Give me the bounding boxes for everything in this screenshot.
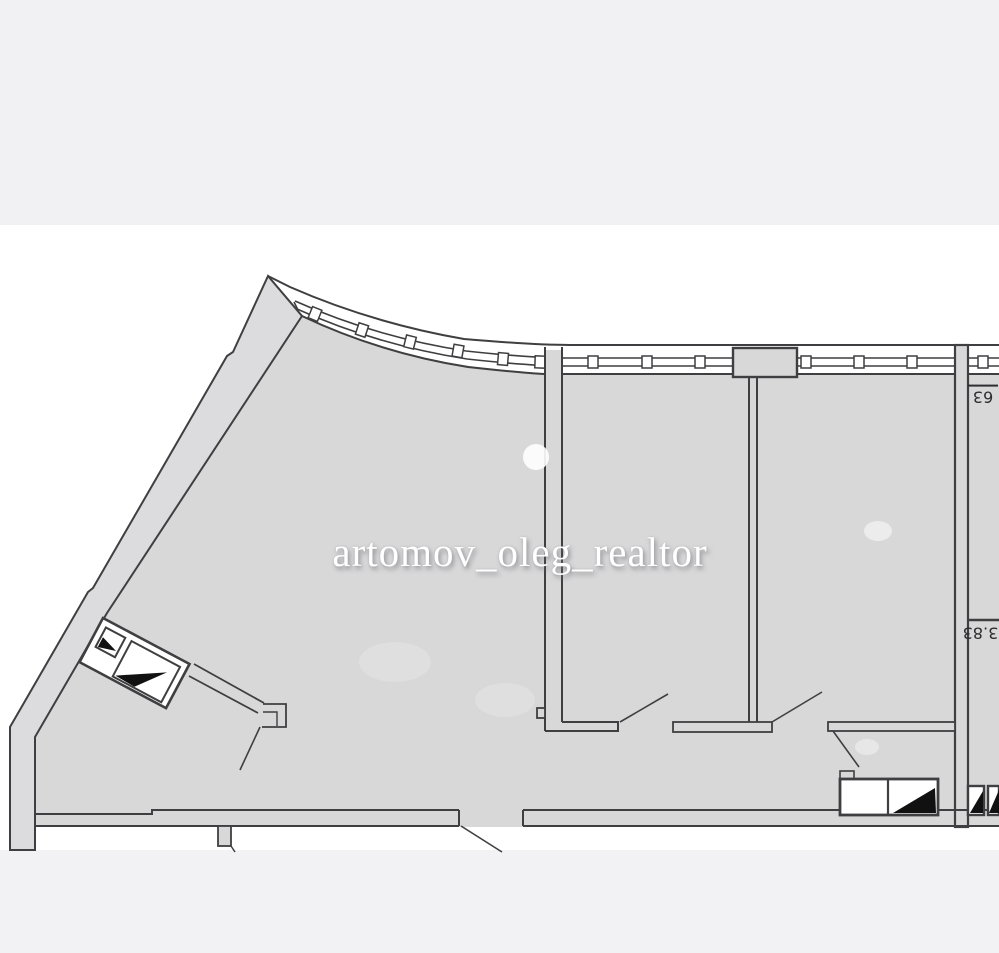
dimension-label-3-83: 3.83	[962, 624, 999, 642]
window-wall-pillar	[733, 348, 797, 377]
floor-plan-drawing	[0, 0, 999, 953]
dimension-label-63: 63	[968, 385, 998, 406]
partition-wall-3	[828, 722, 955, 731]
room-interior-fill	[10, 316, 999, 850]
screenshot-root: { "page": { "background_color": "#ffffff…	[0, 0, 999, 953]
window-wall-outer-line	[268, 276, 999, 345]
right-boundary-wall	[955, 345, 968, 827]
door-swing-balcony	[461, 826, 502, 852]
ventilation-shaft-neighbour	[968, 786, 999, 815]
window-glazing-upper-line	[295, 301, 999, 358]
